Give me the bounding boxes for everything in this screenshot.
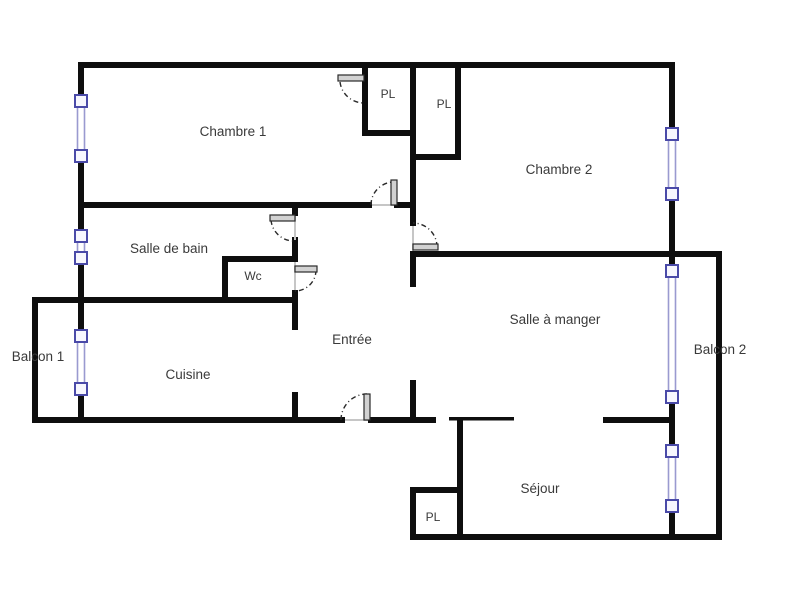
window-chambre1-frame-top [75, 95, 87, 107]
floorplan-svg: Chambre 1 PL PL Chambre 2 Salle de bain … [0, 0, 811, 608]
window-bain-frame-top [75, 230, 87, 242]
window-chambre2-frame-bottom [666, 188, 678, 200]
wall-wc-top [222, 256, 298, 262]
room-label-placard-2: PL [437, 97, 452, 111]
room-label-placard-1: PL [381, 87, 396, 101]
wall-sejour-bottom [410, 534, 722, 540]
wall-pl2-bottom [410, 154, 461, 160]
labels-layer: Chambre 1 PL PL Chambre 2 Salle de bain … [12, 87, 747, 524]
wall-right-seg3 [669, 403, 675, 445]
wall-corridor-left-post2 [292, 290, 298, 297]
window-bain-frame-bottom [75, 252, 87, 264]
wall-top [78, 62, 675, 68]
room-label-placard-3: PL [426, 510, 441, 524]
door-leaf-chambre2 [413, 244, 438, 250]
floorplan-canvas: Chambre 1 PL PL Chambre 2 Salle de bain … [0, 0, 811, 608]
room-label-sejour: Séjour [520, 481, 560, 496]
windows-layer [75, 95, 678, 512]
window-manger-frame-bottom [666, 391, 678, 403]
walls-layer [32, 62, 722, 540]
door-leaf-wc [295, 266, 317, 272]
door-leaf-pl1 [338, 75, 364, 81]
room-label-wc: Wc [244, 269, 261, 283]
window-cuisine-frame-top [75, 330, 87, 342]
wall-pl3-top [410, 487, 463, 493]
door-leaf-entrance [364, 394, 370, 420]
wall-left-seg1 [78, 62, 84, 95]
door-arc-chambre2 [413, 223, 437, 247]
wall-left-seg2 [78, 162, 84, 230]
door-leaf-chambre1 [391, 180, 397, 205]
room-label-cuisine: Cuisine [165, 367, 210, 382]
wall-pl3-left [410, 487, 416, 540]
room-label-chambre-1: Chambre 1 [200, 124, 267, 139]
wall-pl2-right [455, 62, 461, 160]
room-label-salle-a-manger: Salle à manger [510, 312, 601, 327]
room-label-salle-de-bain: Salle de bain [130, 241, 208, 256]
wall-chambre1-bottom [78, 202, 372, 208]
wall-corridor-right-seg1 [410, 62, 416, 208]
wall-bottom-seg3 [603, 417, 675, 423]
window-sejour-glazing [669, 454, 676, 503]
wall-corridor-left-seg1 [292, 202, 298, 216]
wall-corridor-right-seg4 [410, 380, 416, 423]
window-manger-frame-top [666, 265, 678, 277]
window-cuisine-frame-bottom [75, 383, 87, 395]
wall-balcon2-right [716, 251, 722, 540]
room-label-chambre-2: Chambre 2 [526, 162, 593, 177]
window-sejour-frame-top [666, 445, 678, 457]
window-chambre2-glazing [669, 137, 676, 191]
wall-bain-bottom [32, 297, 298, 303]
door-arc-pl1 [340, 82, 364, 103]
room-label-balcon-1: Balcon 1 [12, 349, 65, 364]
wall-right-seg1 [669, 62, 675, 128]
window-chambre2-frame-top [666, 128, 678, 140]
door-arc-bain [271, 220, 294, 241]
room-label-entree: Entrée [332, 332, 372, 347]
wall-corridor-right-seg3 [410, 257, 416, 287]
room-label-balcon-2: Balcon 2 [694, 342, 747, 357]
door-arc-entrance [341, 394, 367, 420]
window-sejour-frame-bottom [666, 500, 678, 512]
window-chambre1-glazing [78, 104, 85, 153]
wall-chambre2-bottom [410, 251, 722, 257]
door-arc-wc [295, 270, 316, 291]
window-cuisine-glazing [78, 339, 85, 386]
wall-pl1-bottom [362, 130, 416, 136]
door-leaf-bain [270, 215, 295, 221]
wall-bottom-seg1 [32, 417, 345, 423]
wall-pl1-left [362, 62, 368, 136]
window-manger-glazing [669, 274, 676, 394]
window-chambre1-frame-bottom [75, 150, 87, 162]
wall-sejour-left [457, 417, 463, 540]
wall-bottom-seg2 [368, 417, 436, 423]
wall-wc-left [222, 256, 228, 303]
